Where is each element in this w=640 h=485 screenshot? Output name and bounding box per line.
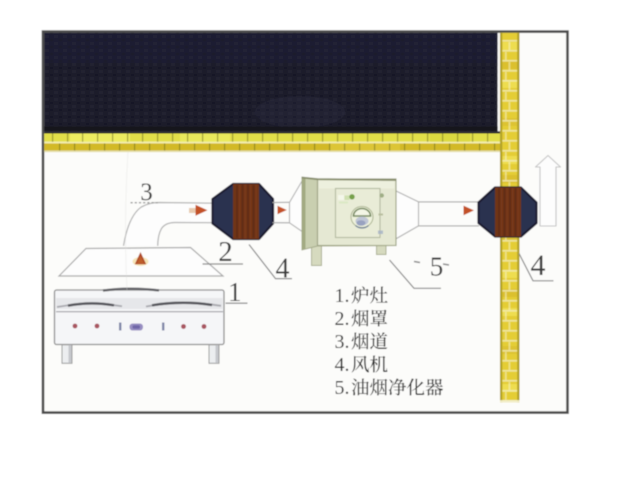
svg-text:1: 1 [228, 277, 242, 307]
svg-text:2.: 2. [335, 308, 350, 330]
svg-text:3: 3 [140, 179, 153, 206]
svg-text:3.: 3. [335, 331, 350, 353]
svg-text:1.: 1. [335, 285, 350, 307]
svg-text:2: 2 [218, 236, 233, 268]
svg-text:4: 4 [276, 254, 290, 285]
svg-text:5.: 5. [335, 377, 350, 399]
svg-text:4.: 4. [335, 354, 350, 376]
svg-text:5: 5 [430, 252, 444, 282]
svg-text:4: 4 [531, 249, 546, 282]
